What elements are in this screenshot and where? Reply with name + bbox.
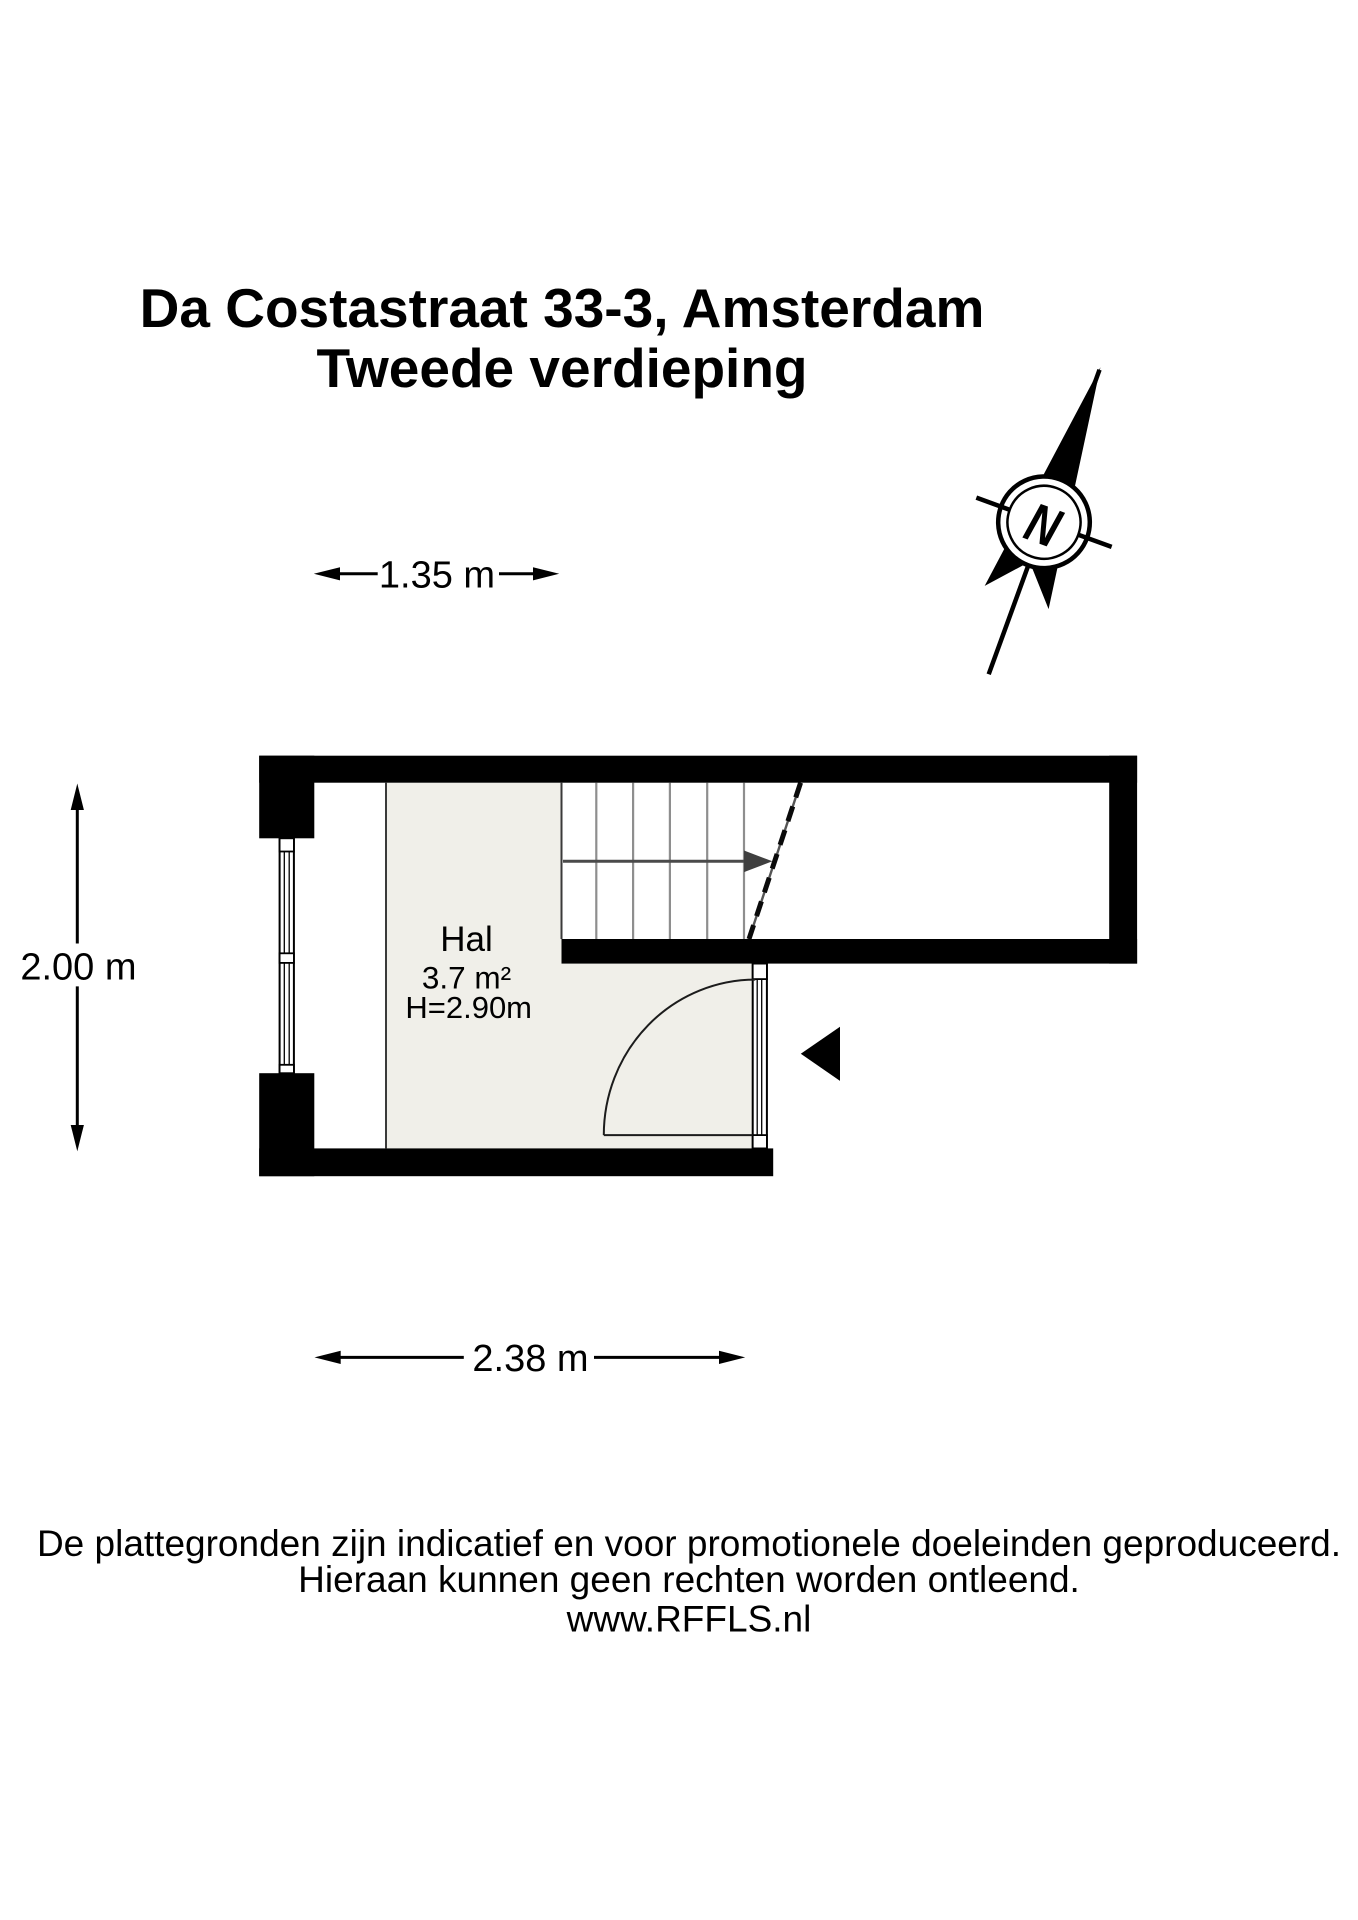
svg-text:H=2.90m: H=2.90m <box>405 990 532 1025</box>
svg-text:Hal: Hal <box>440 920 493 959</box>
svg-text:Da Costastraat 33-3, Amsterdam: Da Costastraat 33-3, Amsterdam <box>140 277 985 339</box>
svg-text:www.RFFLS.nl: www.RFFLS.nl <box>566 1598 812 1639</box>
svg-text:2.38 m: 2.38 m <box>472 1338 588 1380</box>
svg-text:1.35 m: 1.35 m <box>379 555 495 597</box>
svg-text:Hieraan kunnen geen rechten wo: Hieraan kunnen geen rechten worden ontle… <box>298 1559 1080 1600</box>
svg-text:Tweede verdieping: Tweede verdieping <box>316 337 807 399</box>
svg-text:2.00 m: 2.00 m <box>20 947 136 989</box>
